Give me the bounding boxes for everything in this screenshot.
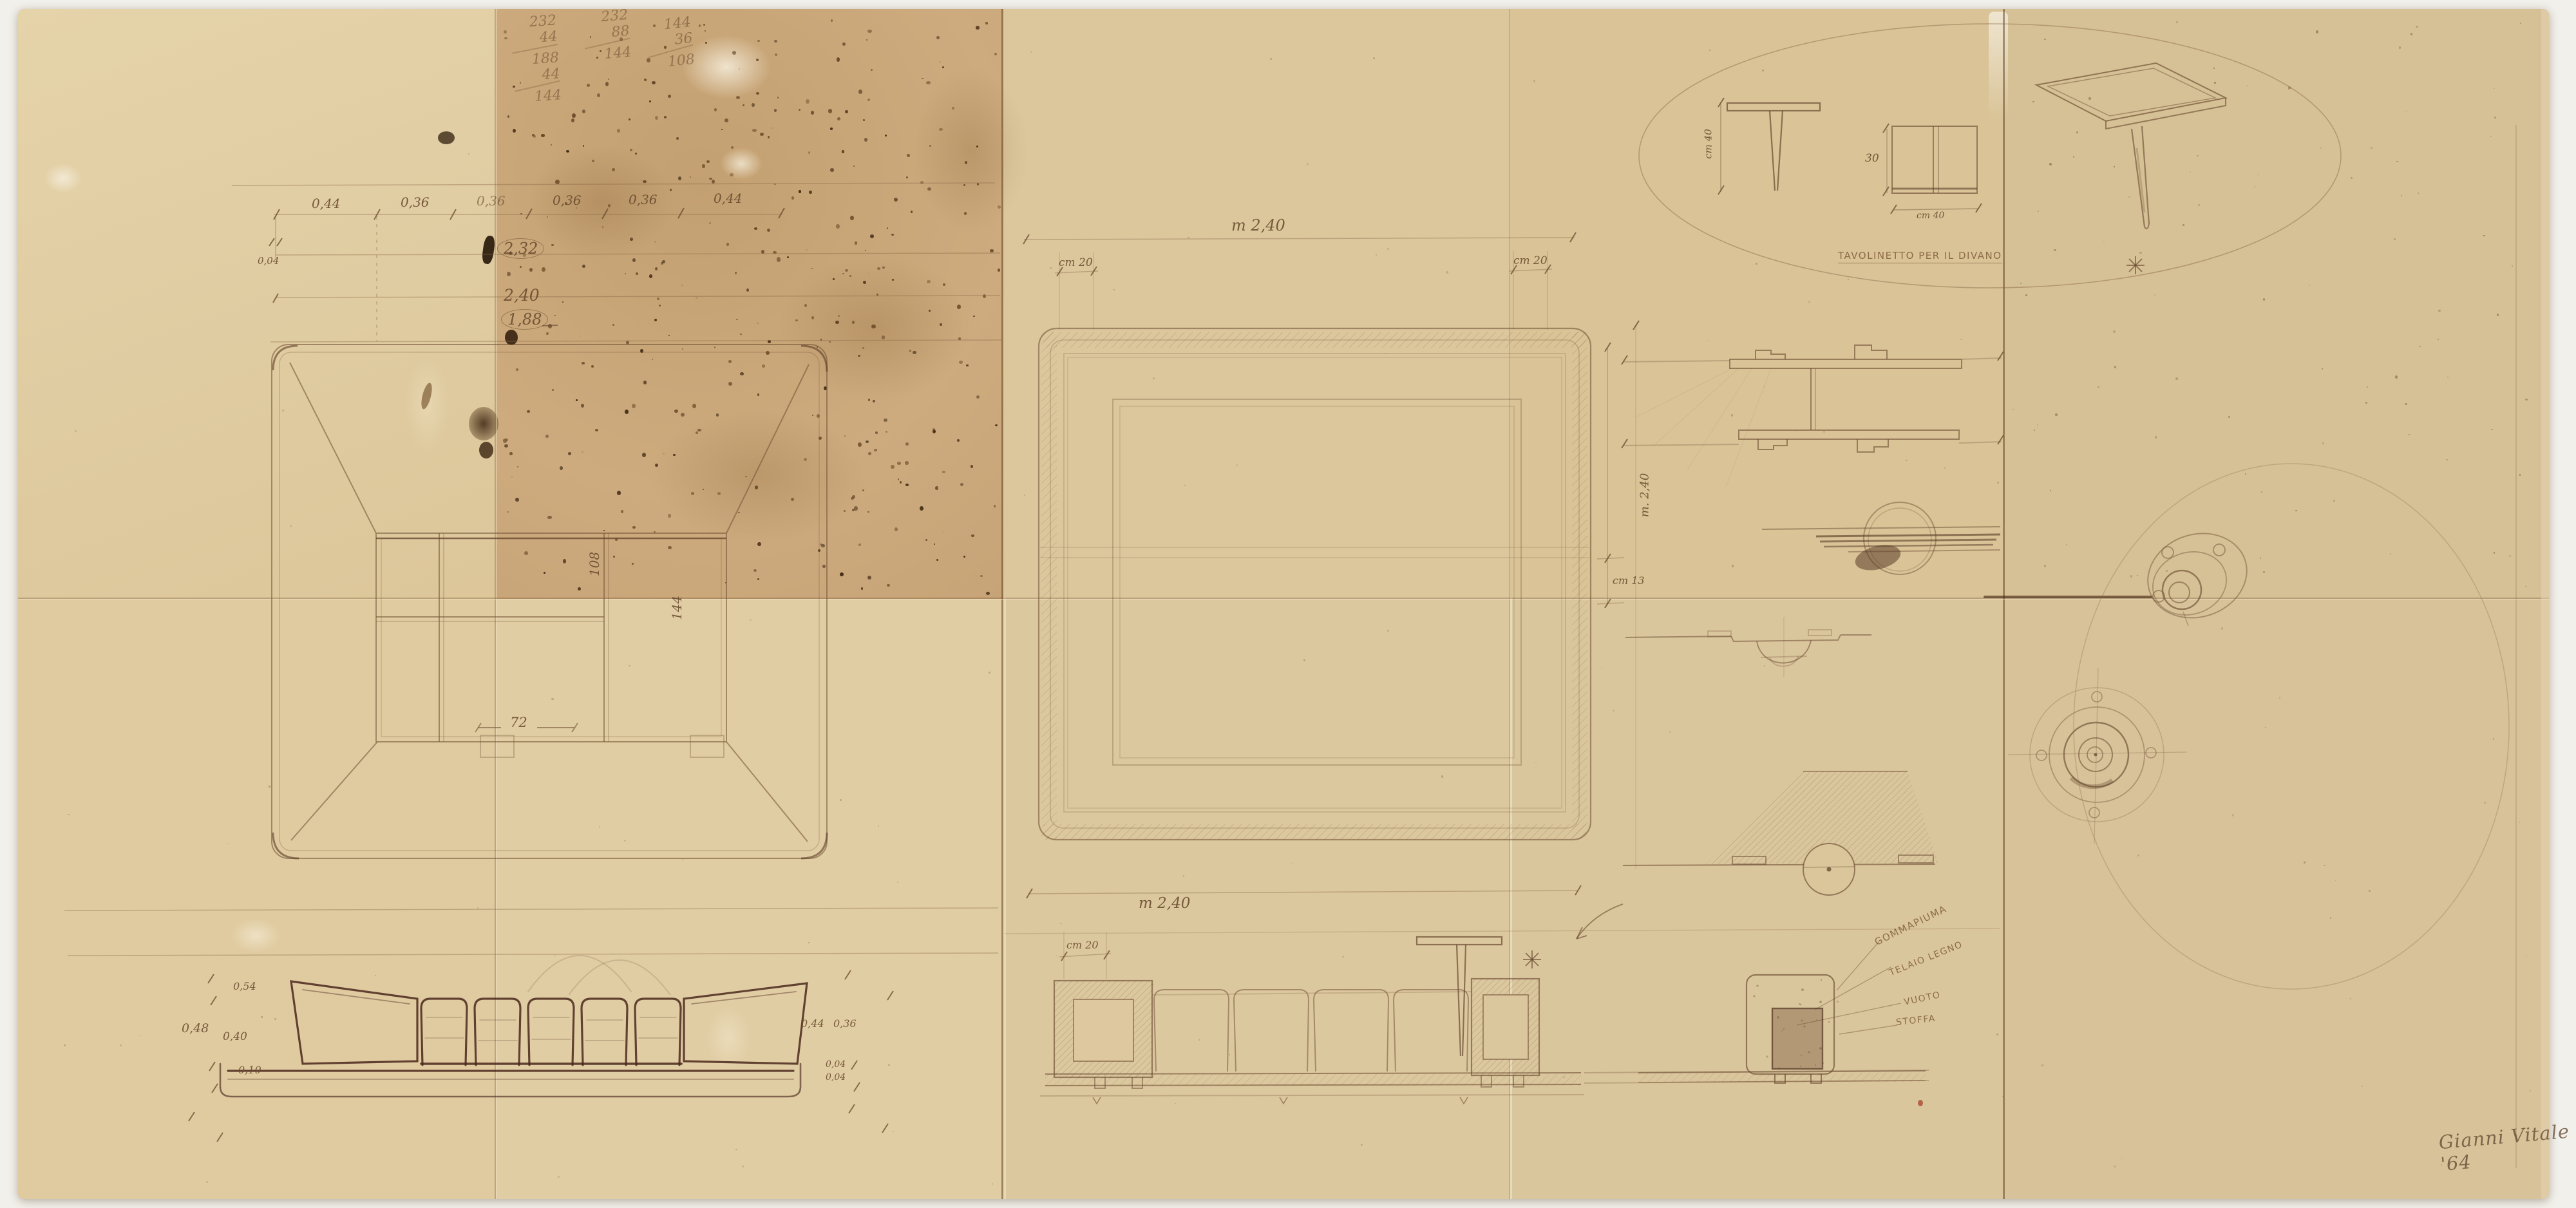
dim-chain-value: 0,36 bbox=[629, 193, 658, 206]
elev-dim-040: 0,40 bbox=[223, 1032, 247, 1043]
panel-top-2-stained bbox=[496, 9, 1003, 599]
elev-dim-044: 0,44 bbox=[801, 1019, 824, 1029]
scan-stage: 232 44 188 44 144 232 88 144 144 36 108 … bbox=[0, 0, 2576, 1208]
total-dimension-circled: 2,32 bbox=[497, 238, 544, 259]
panel-top-3 bbox=[1003, 9, 1510, 599]
dim-chain-value: 0,36 bbox=[553, 194, 582, 207]
inner-dimension-circled: 1,88 bbox=[501, 309, 548, 330]
elev-dim-004b: 0,04 bbox=[826, 1073, 846, 1082]
panel-bottom-left bbox=[18, 599, 496, 1199]
panel-top-4 bbox=[1510, 9, 2004, 599]
calc-column-2: 232 88 144 bbox=[576, 7, 632, 65]
circled-value: 1,88 bbox=[501, 309, 548, 330]
panel-top-right bbox=[2004, 9, 2549, 599]
tavolinetto-side-height: cm 40 bbox=[1704, 129, 1714, 158]
center-plan-side-offset: cm 13 bbox=[1613, 576, 1645, 586]
elev-dim-010: 0,10 bbox=[238, 1065, 261, 1075]
small-dimension: 0,04 bbox=[258, 256, 279, 266]
drawing-sheet bbox=[18, 9, 2549, 1199]
tavolinetto-caption: TAVOLINETTO PER IL DIVANO bbox=[1838, 251, 2002, 263]
center-plan-left-offset: cm 20 bbox=[1059, 258, 1093, 269]
elevation-center-top-dim: m 2,40 bbox=[1139, 896, 1190, 911]
elev-dim-036: 0,36 bbox=[833, 1019, 857, 1029]
dim-chain-value: 0,44 bbox=[312, 197, 341, 210]
elev-dim-048: 0,48 bbox=[182, 1023, 209, 1035]
center-plan-right-offset: cm 20 bbox=[1513, 256, 1548, 267]
elev-dim-054: 0,54 bbox=[233, 981, 256, 992]
mid-dimension: 2,40 bbox=[504, 287, 540, 303]
center-plan-top-dim: m 2,40 bbox=[1231, 218, 1285, 233]
calc-column-1: 232 44 188 44 144 bbox=[504, 12, 562, 106]
plan-label-144: 144 bbox=[670, 596, 683, 620]
center-plan-side-dim: m. 2,40 bbox=[1639, 473, 1651, 518]
plan-label-72: 72 bbox=[510, 716, 527, 730]
panel-bottom-2 bbox=[496, 599, 1003, 1199]
dim-chain-value: 0,36 bbox=[401, 196, 430, 209]
tavolinetto-front-width: cm 40 bbox=[1917, 211, 1944, 220]
calc-column-3: 144 36 108 bbox=[639, 14, 696, 73]
plan-label-108: 108 bbox=[588, 552, 601, 576]
elev-dim-004a: 0,04 bbox=[826, 1060, 846, 1069]
panel-top-left bbox=[18, 9, 496, 599]
panel-bottom-right bbox=[2004, 599, 2549, 1199]
dim-chain-value: 0,44 bbox=[714, 192, 743, 205]
dim-chain-value: 0,36 bbox=[477, 194, 506, 207]
tavolinetto-front-height: 30 bbox=[1865, 153, 1879, 164]
elevation-center-offset: cm 20 bbox=[1066, 940, 1099, 950]
panel-bottom-4 bbox=[1510, 599, 2004, 1199]
panel-bottom-3 bbox=[1003, 599, 1510, 1199]
circled-value: 2,32 bbox=[497, 238, 544, 259]
